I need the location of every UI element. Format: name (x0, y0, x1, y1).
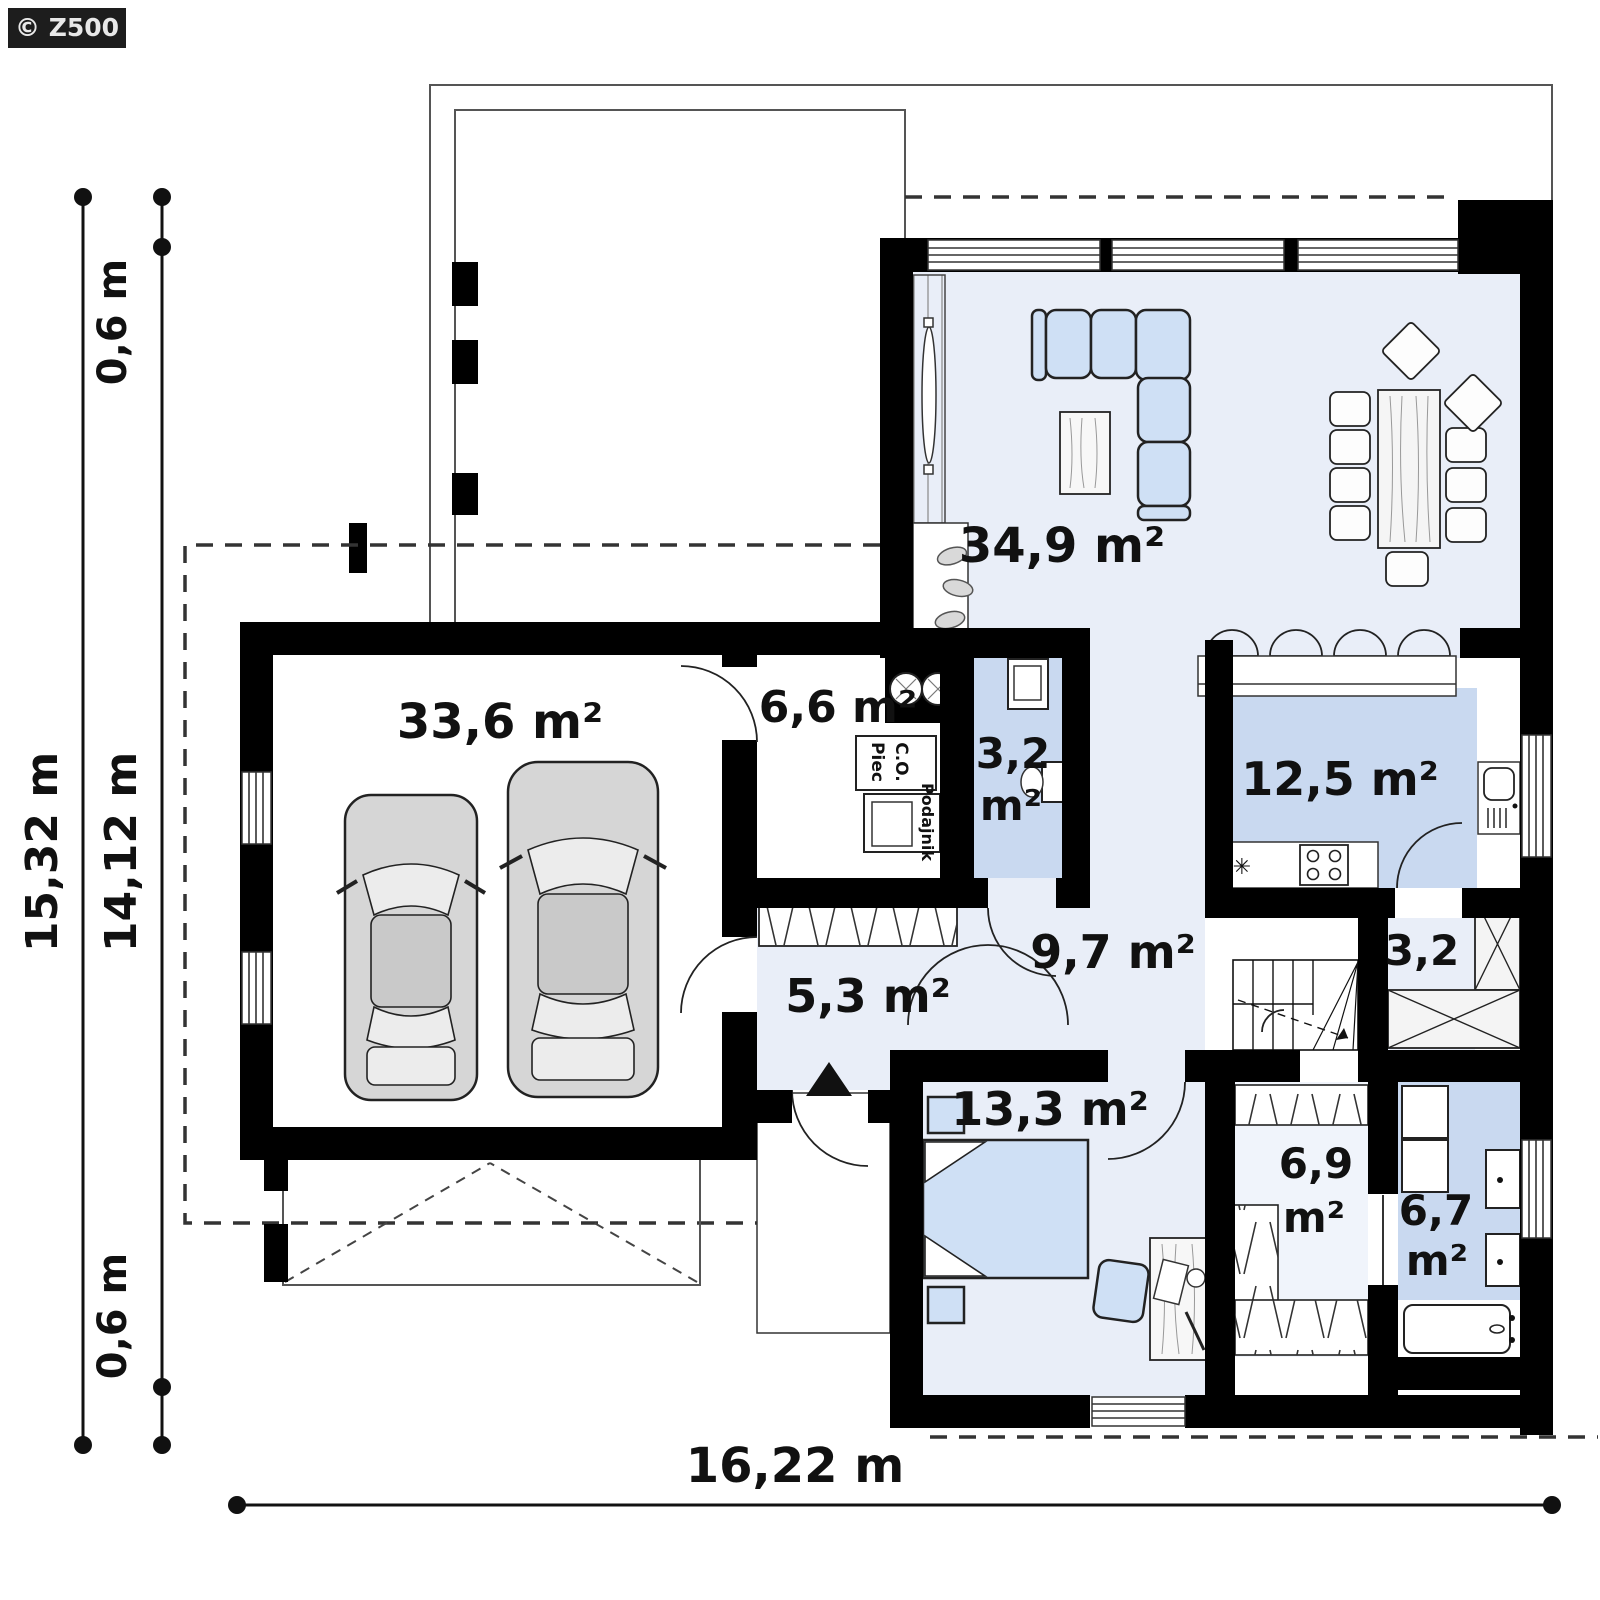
dining-table (1378, 390, 1440, 548)
bathroom-window (1522, 1140, 1551, 1238)
bedroom-window (1092, 1397, 1185, 1426)
dim-offset-top: 0,6 m (90, 259, 136, 385)
bath-sink-2 (1486, 1234, 1520, 1286)
floor-plan-canvas: ✳ Piec C.O. Podajnik (0, 0, 1600, 1600)
kitchen-sink-unit (1478, 762, 1520, 834)
bathroom-label-value: 6,7 (1399, 1186, 1473, 1235)
boiler-label-line2: C.O. (891, 742, 911, 781)
living-window-1 (928, 240, 1100, 270)
living-window-3 (1298, 240, 1458, 270)
watermark: © Z500 (8, 8, 126, 48)
nightstand-bottom (928, 1287, 964, 1323)
terrace-sliding-door (913, 275, 945, 523)
garage-window-1 (242, 772, 271, 844)
garage-label: 33,6 m² (397, 694, 603, 750)
boiler-room-label: 6,6 m² (759, 682, 917, 733)
kitchen-bar-counter (1198, 656, 1456, 696)
kitchen-label: 12,5 m² (1241, 752, 1439, 806)
watermark-text: © Z500 (15, 13, 119, 42)
garage-window-2 (242, 952, 271, 1024)
living-room-label: 34,9 m² (959, 518, 1165, 574)
entry-label: 5,3 m² (785, 969, 951, 1023)
bedroom-label: 13,3 m² (951, 1082, 1149, 1136)
dim-total-height: 15,32 m (17, 752, 68, 952)
boiler-label-line1: Piec (867, 742, 887, 782)
staircase (1233, 960, 1358, 1050)
washer (1402, 1086, 1448, 1138)
feeder-label: Podajnik (918, 783, 937, 861)
pantry-label: 3,2 (1385, 926, 1459, 975)
wardrobe-label-unit: m² (1283, 1193, 1345, 1242)
garage-car-right (500, 762, 666, 1097)
dishwasher-mark: ✳ (1233, 855, 1251, 880)
feeder-unit: Podajnik (864, 783, 940, 861)
hall-label: 9,7 m² (1030, 925, 1196, 979)
coffee-table (1060, 412, 1110, 494)
wc-label-value: 3,2 (976, 729, 1050, 778)
living-window-2 (1112, 240, 1284, 270)
dryer (1402, 1140, 1448, 1192)
dim-total-width: 16,22 m (686, 1438, 905, 1494)
dim-inner-height: 14,12 m (96, 752, 147, 952)
wc-label-unit: m² (980, 781, 1042, 830)
desk (1150, 1238, 1210, 1360)
kitchen-hob-counter: ✳ (1218, 842, 1378, 888)
wardrobe-label-value: 6,9 (1279, 1139, 1353, 1188)
desk-chair (1092, 1259, 1150, 1323)
kitchen-window (1522, 735, 1551, 857)
garage-car-left (337, 795, 485, 1100)
bath-sink-1 (1486, 1150, 1520, 1208)
dim-offset-bottom: 0,6 m (90, 1253, 136, 1379)
entry-porch (757, 1093, 890, 1333)
boiler-unit: Piec C.O. (856, 736, 936, 790)
bathroom-label-unit: m² (1406, 1236, 1468, 1285)
